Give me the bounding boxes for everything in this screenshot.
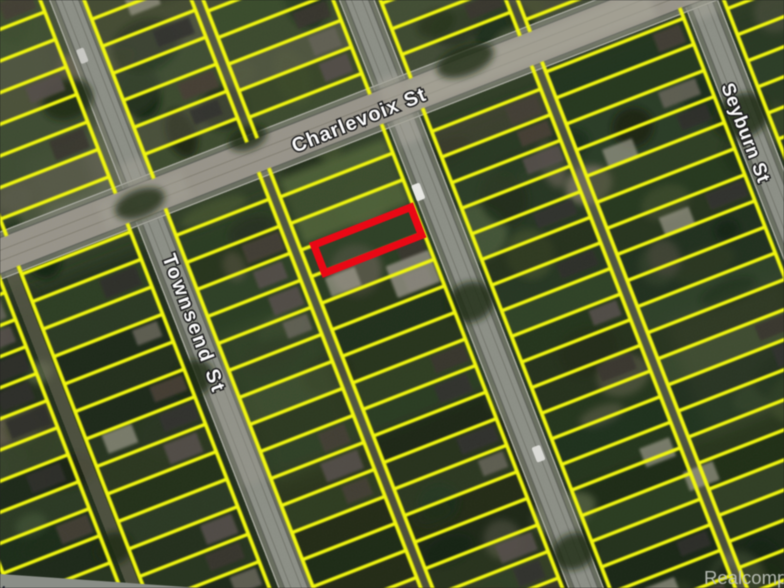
svg-text:Realcomp: Realcomp [704,567,784,588]
